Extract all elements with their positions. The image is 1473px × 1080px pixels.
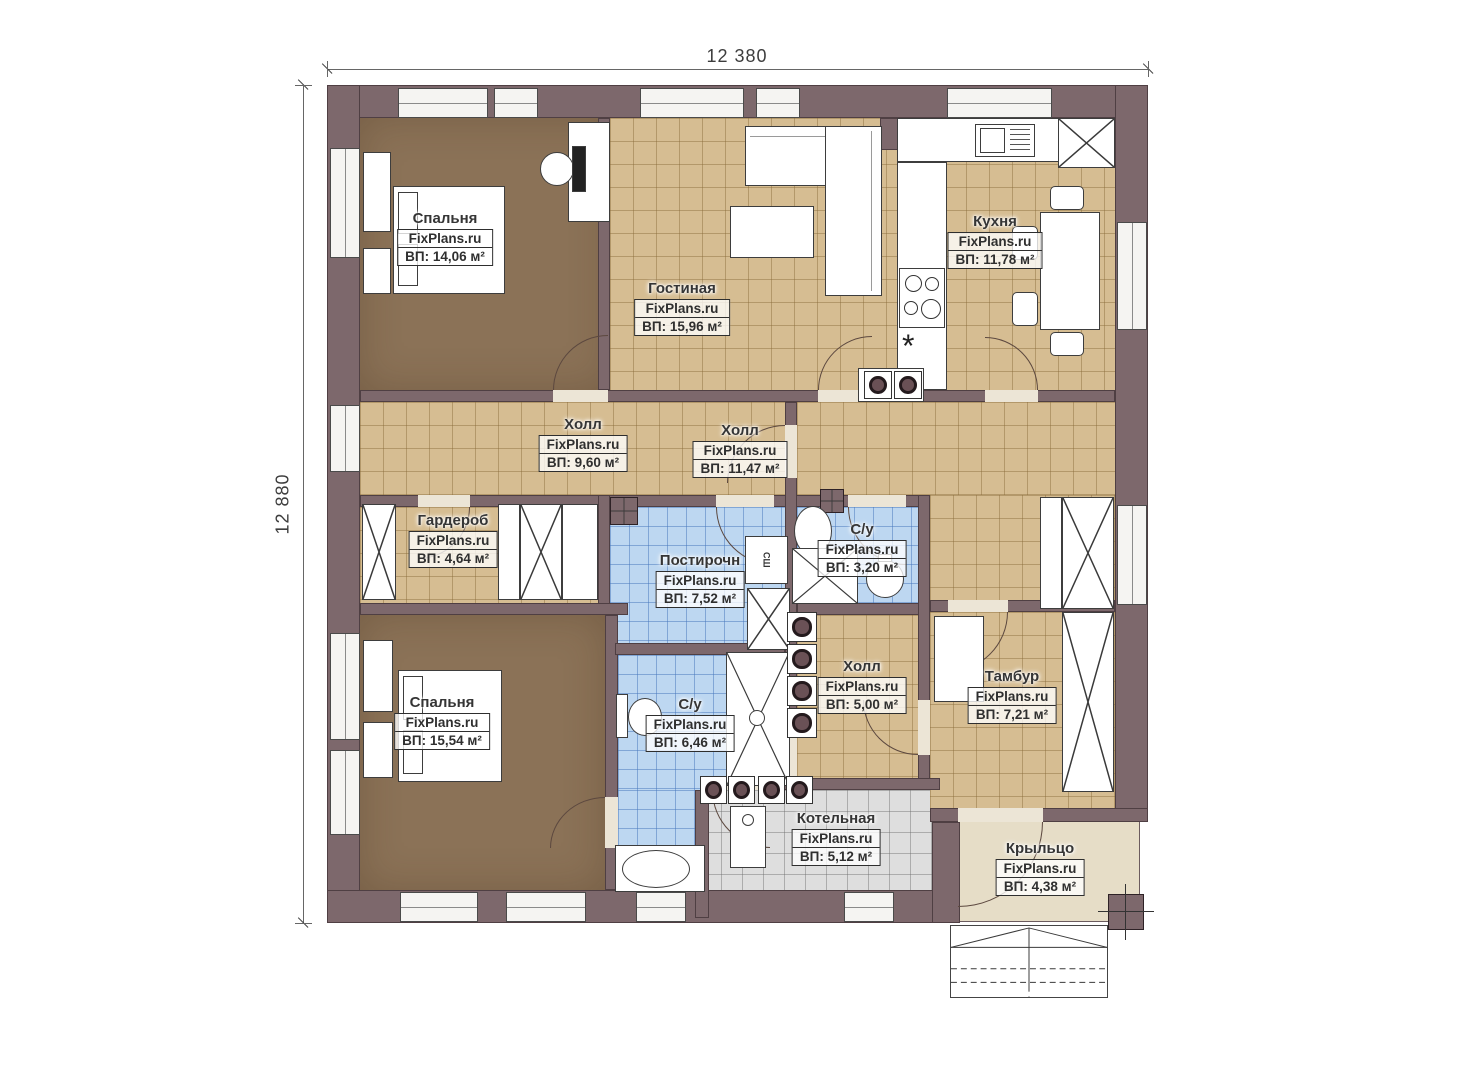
room-area: ВП: 5,12 м²	[793, 848, 880, 865]
watermark-text: FixPlans.ru	[819, 678, 906, 696]
equipment-ring	[787, 612, 817, 642]
room-name: Спальня	[397, 210, 493, 227]
room-area: ВП: 3,20 м²	[819, 559, 906, 576]
equipment-ring	[787, 644, 817, 674]
porch-column	[1108, 894, 1144, 930]
sofa	[825, 126, 882, 296]
equipment-ring	[894, 371, 922, 399]
room-name: Кухня	[948, 213, 1043, 230]
chair	[1050, 186, 1084, 210]
label-card: FixPlans.ru ВП: 15,54 м²	[394, 713, 490, 750]
window	[1117, 505, 1147, 605]
window	[636, 892, 686, 922]
boiler-gauge	[742, 814, 754, 826]
room-label-porch: Крыльцо FixPlans.ru ВП: 4,38 м²	[996, 840, 1085, 896]
dimension-height: 12 880	[273, 473, 294, 534]
watermark-text: FixPlans.ru	[395, 714, 489, 732]
dimension-line-top	[327, 69, 1148, 70]
room-area: ВП: 15,54 м²	[395, 732, 489, 749]
room-area: ВП: 4,38 м²	[997, 878, 1084, 895]
watermark-text: FixPlans.ru	[694, 442, 787, 460]
fridge	[1058, 118, 1115, 168]
floor-plan-canvas: 12 380 12 880	[0, 0, 1473, 1080]
dimension-line-left	[303, 85, 304, 923]
dimension-extension	[1148, 61, 1149, 77]
equipment-ring	[786, 776, 813, 804]
window	[400, 892, 478, 922]
wall-outer-right	[1115, 85, 1148, 822]
room-name: Спальня	[394, 694, 490, 711]
porch-steps	[950, 925, 1108, 998]
room-name: Гостиная	[634, 280, 730, 297]
watermark-text: FixPlans.ru	[410, 532, 497, 550]
room-name: Котельная	[792, 810, 881, 827]
watermark-text: FixPlans.ru	[997, 860, 1084, 878]
label-card: FixPlans.ru ВП: 11,47 м²	[693, 441, 788, 478]
room-area: ВП: 11,78 м²	[949, 251, 1042, 268]
label-card: FixPlans.ru ВП: 4,38 м²	[996, 859, 1085, 896]
label-card: FixPlans.ru ВП: 3,20 м²	[818, 540, 907, 577]
watermark-text: FixPlans.ru	[949, 233, 1042, 251]
room-area: ВП: 15,96 м²	[635, 318, 729, 335]
watermark-text: FixPlans.ru	[540, 436, 627, 454]
window	[1117, 222, 1147, 330]
window	[506, 892, 586, 922]
stove	[899, 268, 945, 328]
equipment-ring	[728, 776, 755, 804]
wardrobe-cabinet	[1062, 497, 1114, 609]
room-label-living-room: Гостиная FixPlans.ru ВП: 15,96 м²	[634, 280, 730, 336]
coffee-table	[730, 206, 814, 258]
dimension-extension	[327, 61, 328, 77]
desk-chair	[540, 152, 574, 186]
room-label-boiler-room: Котельная FixPlans.ru ВП: 5,12 м²	[792, 810, 881, 866]
room-label-bedroom-1: Спальня FixPlans.ru ВП: 14,06 м²	[397, 210, 493, 266]
door-opening	[918, 700, 930, 755]
window	[844, 892, 894, 922]
label-card: FixPlans.ru ВП: 11,78 м²	[948, 232, 1043, 269]
room-label-vestibule: Тамбур FixPlans.ru ВП: 7,21 м²	[968, 668, 1057, 724]
watermark-text: FixPlans.ru	[819, 541, 906, 559]
room-label-hall-3: Холл FixPlans.ru ВП: 5,00 м²	[818, 658, 907, 714]
wall-porch-left	[932, 822, 960, 923]
bathtub	[622, 850, 690, 888]
window	[640, 88, 744, 118]
column-axis	[1125, 884, 1126, 940]
room-name: Крыльцо	[996, 840, 1085, 857]
dimension-width: 12 380	[706, 46, 767, 67]
nightstand	[363, 640, 393, 712]
floor-hall-2	[797, 402, 1115, 495]
door-opening	[848, 495, 906, 507]
wall-inner	[360, 603, 628, 615]
window	[756, 88, 800, 118]
label-card: FixPlans.ru ВП: 7,52 м²	[656, 571, 745, 608]
wardrobe-cabinet	[1062, 612, 1114, 792]
room-label-wardrobe: Гардероб FixPlans.ru ВП: 4,64 м²	[409, 512, 498, 568]
room-name: Постирочн	[656, 552, 745, 569]
room-area: ВП: 7,21 м²	[969, 706, 1056, 723]
wardrobe-cabinet	[362, 504, 396, 600]
room-area: ВП: 9,60 м²	[540, 454, 627, 471]
room-name: Холл	[539, 416, 628, 433]
chair	[1012, 292, 1038, 326]
sink-basin	[980, 128, 1005, 153]
label-card: FixPlans.ru ВП: 5,12 м²	[792, 829, 881, 866]
vent-symbol: *	[902, 330, 914, 362]
label-card: FixPlans.ru ВП: 5,00 м²	[818, 677, 907, 714]
watermark-text: FixPlans.ru	[657, 572, 744, 590]
floor-bathroom-2-lower	[618, 790, 695, 845]
room-area: ВП: 4,64 м²	[410, 550, 497, 567]
equipment-ring	[787, 708, 817, 738]
door-opening	[605, 797, 618, 848]
room-label-bathroom-1: С/у FixPlans.ru ВП: 3,20 м²	[818, 521, 907, 577]
room-name: С/у	[818, 521, 907, 538]
window	[330, 148, 360, 258]
room-label-bathroom-2: С/у FixPlans.ru ВП: 6,46 м²	[646, 696, 735, 752]
label-card: FixPlans.ru ВП: 15,96 м²	[634, 299, 730, 336]
door-opening	[948, 600, 1008, 612]
equipment-ring	[700, 776, 727, 804]
nightstand	[363, 152, 391, 232]
dimension-extension	[295, 923, 312, 924]
chimney-shaft	[610, 497, 638, 525]
label-card: FixPlans.ru ВП: 9,60 м²	[539, 435, 628, 472]
wardrobe-cabinet	[520, 504, 562, 600]
room-name: Холл	[693, 422, 788, 439]
column-axis	[1098, 911, 1154, 912]
door-opening	[553, 390, 608, 402]
watermark-text: FixPlans.ru	[793, 830, 880, 848]
washing-machine	[747, 588, 790, 650]
window	[330, 750, 360, 835]
room-label-hall-2: Холл FixPlans.ru ВП: 11,47 м²	[693, 422, 788, 478]
window	[330, 633, 360, 740]
label-card: FixPlans.ru ВП: 4,64 м²	[409, 531, 498, 568]
room-label-kitchen: Кухня FixPlans.ru ВП: 11,78 м²	[948, 213, 1043, 269]
shower-drain	[749, 710, 765, 726]
door-opening	[418, 495, 470, 507]
window	[494, 88, 538, 118]
room-label-laundry: Постирочн FixPlans.ru ВП: 7,52 м²	[656, 552, 745, 608]
shelf	[562, 504, 598, 600]
room-name: Тамбур	[968, 668, 1057, 685]
room-area: ВП: 7,52 м²	[657, 590, 744, 607]
watermark-text: FixPlans.ru	[969, 688, 1056, 706]
room-area: ВП: 11,47 м²	[694, 460, 787, 477]
window	[947, 88, 1052, 118]
shelf	[498, 504, 520, 600]
label-card: FixPlans.ru ВП: 14,06 м²	[397, 229, 493, 266]
room-area: ВП: 14,06 м²	[398, 248, 492, 265]
desk-monitor	[572, 146, 586, 192]
room-name: Гардероб	[409, 512, 498, 529]
room-name: Холл	[818, 658, 907, 675]
window	[330, 405, 360, 472]
room-area: ВП: 5,00 м²	[819, 696, 906, 713]
wall-inner	[598, 495, 610, 615]
door-opening	[958, 808, 1043, 822]
nightstand	[363, 248, 391, 294]
toilet-tank	[616, 694, 628, 738]
watermark-text: FixPlans.ru	[398, 230, 492, 248]
room-label-hall-1: Холл FixPlans.ru ВП: 9,60 м²	[539, 416, 628, 472]
nightstand	[363, 722, 393, 778]
equipment-ring	[758, 776, 785, 804]
sink-drainer	[1010, 129, 1030, 152]
watermark-text: FixPlans.ru	[635, 300, 729, 318]
door-opening	[716, 495, 774, 507]
room-label-bedroom-2: Спальня FixPlans.ru ВП: 15,54 м²	[394, 694, 490, 750]
dining-table	[1040, 212, 1100, 330]
dimension-extension	[295, 85, 312, 86]
label-card: FixPlans.ru ВП: 6,46 м²	[646, 715, 735, 752]
room-area: ВП: 6,46 м²	[647, 734, 734, 751]
window	[398, 88, 488, 118]
dryer-unit: СШ	[745, 536, 788, 584]
shelf	[1040, 497, 1062, 609]
equipment-ring	[787, 676, 817, 706]
watermark-text: FixPlans.ru	[647, 716, 734, 734]
room-name: С/у	[646, 696, 735, 713]
chair	[1050, 332, 1084, 356]
equipment-ring	[864, 371, 892, 399]
door-opening	[985, 390, 1038, 402]
label-card: FixPlans.ru ВП: 7,21 м²	[968, 687, 1057, 724]
